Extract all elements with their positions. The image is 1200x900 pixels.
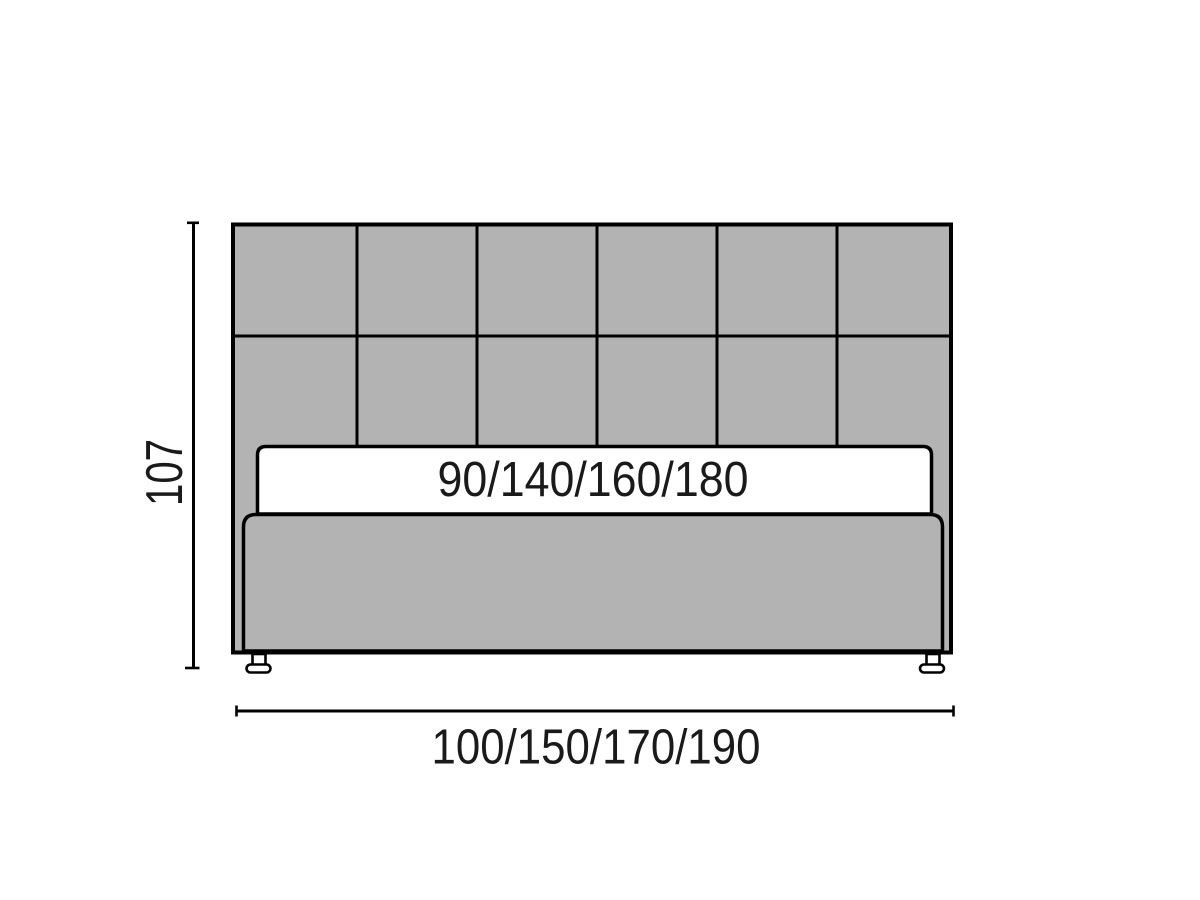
svg-text:100/150/170/190: 100/150/170/190 [432, 720, 761, 775]
svg-text:107: 107 [135, 439, 193, 506]
svg-text:90/140/160/180: 90/140/160/180 [438, 452, 749, 507]
